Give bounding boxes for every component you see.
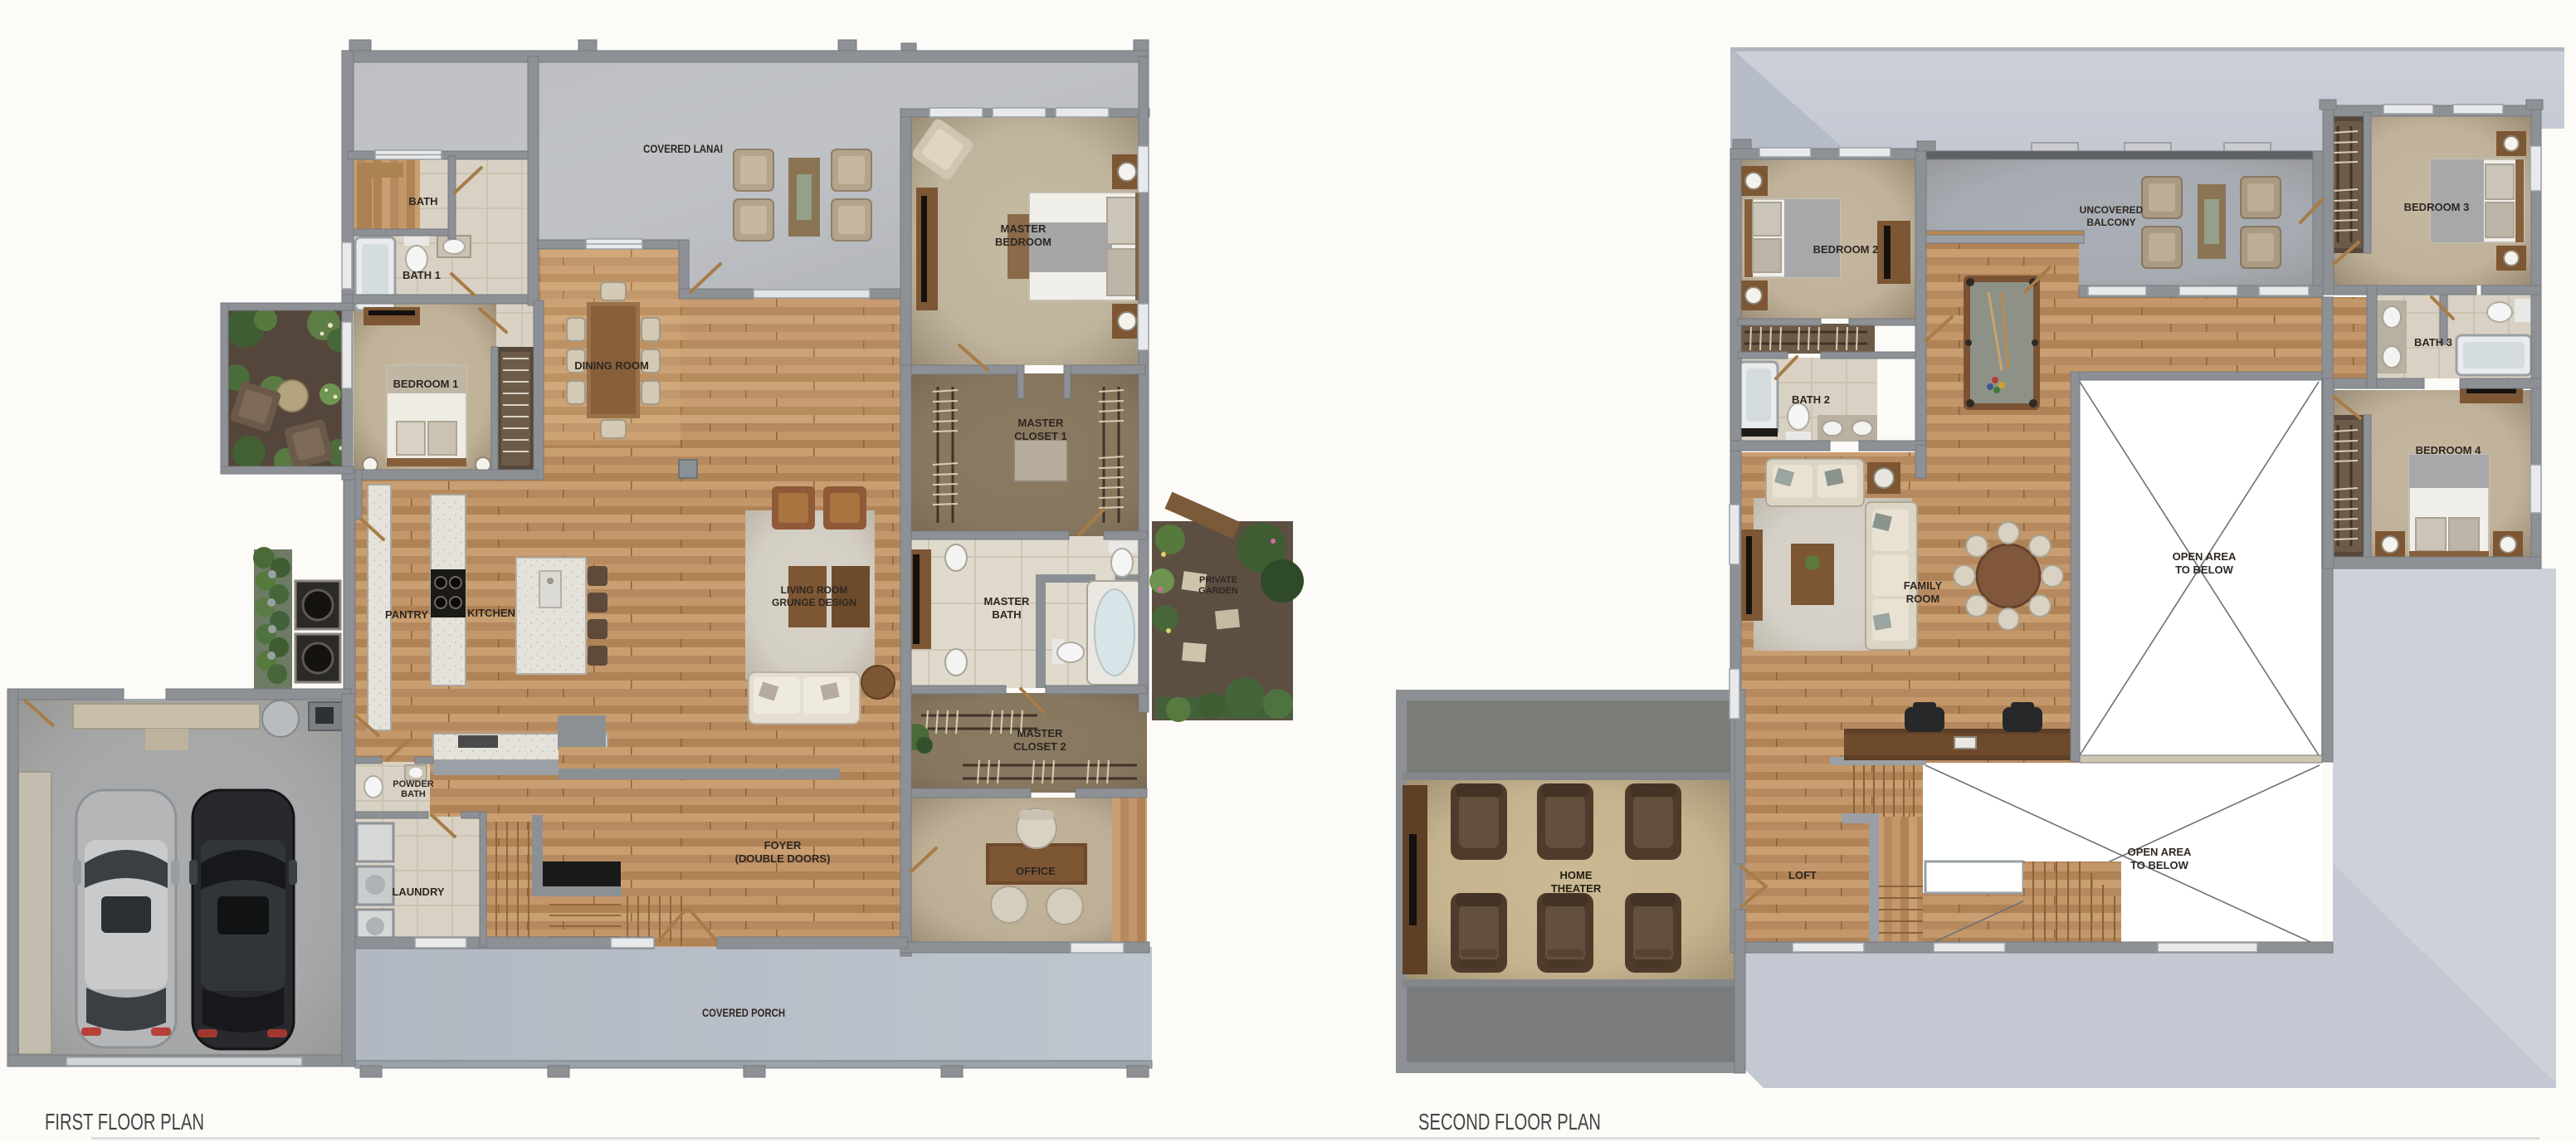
svg-text:OPEN AREA: OPEN AREA bbox=[2173, 550, 2237, 563]
svg-text:KITCHEN: KITCHEN bbox=[467, 607, 515, 619]
svg-text:MASTER: MASTER bbox=[1018, 417, 1065, 429]
svg-text:DINING ROOM: DINING ROOM bbox=[574, 359, 649, 372]
svg-text:CLOSET 1: CLOSET 1 bbox=[1014, 430, 1067, 442]
svg-text:BATH 3: BATH 3 bbox=[2414, 336, 2452, 349]
svg-text:LOFT: LOFT bbox=[1788, 869, 1817, 881]
svg-text:BATH 2: BATH 2 bbox=[1792, 393, 1830, 406]
svg-text:COVERED PORCH: COVERED PORCH bbox=[702, 1006, 785, 1019]
svg-text:PRIVATE: PRIVATE bbox=[1199, 575, 1237, 585]
svg-text:UNCOVERED: UNCOVERED bbox=[2080, 204, 2144, 216]
svg-text:BATH: BATH bbox=[992, 608, 1021, 621]
svg-text:LAUNDRY: LAUNDRY bbox=[392, 886, 444, 898]
svg-text:CLOSET 2: CLOSET 2 bbox=[1013, 740, 1066, 753]
svg-text:BEDROOM 1: BEDROOM 1 bbox=[393, 378, 459, 390]
svg-text:MASTER: MASTER bbox=[1001, 222, 1047, 235]
svg-text:BATH: BATH bbox=[408, 195, 437, 207]
svg-text:THEATER: THEATER bbox=[1551, 882, 1602, 895]
svg-text:MASTER: MASTER bbox=[1017, 727, 1064, 739]
svg-text:FOYER: FOYER bbox=[764, 839, 802, 852]
svg-text:FAMILY: FAMILY bbox=[1904, 579, 1943, 592]
svg-text:BATH: BATH bbox=[401, 789, 426, 799]
svg-text:COVERED LANAI: COVERED LANAI bbox=[643, 142, 723, 155]
svg-text:SECOND FLOOR PLAN: SECOND FLOOR PLAN bbox=[1418, 1109, 1601, 1135]
svg-text:GRUNGE DESIGN: GRUNGE DESIGN bbox=[772, 597, 856, 608]
svg-text:GARDEN: GARDEN bbox=[1198, 586, 1238, 596]
svg-text:MASTER: MASTER bbox=[984, 595, 1031, 608]
svg-text:OFFICE: OFFICE bbox=[1016, 865, 1056, 877]
svg-text:BATH 1: BATH 1 bbox=[402, 269, 441, 281]
svg-text:ROOM: ROOM bbox=[1906, 593, 1939, 605]
svg-text:(DOUBLE DOORS): (DOUBLE DOORS) bbox=[735, 852, 831, 865]
svg-text:BEDROOM 2: BEDROOM 2 bbox=[1813, 243, 1879, 256]
svg-text:TO BELOW: TO BELOW bbox=[2175, 564, 2234, 576]
svg-text:OPEN AREA: OPEN AREA bbox=[2128, 846, 2192, 858]
svg-text:HOME: HOME bbox=[1560, 869, 1593, 881]
svg-text:LIVING ROOM: LIVING ROOM bbox=[781, 584, 848, 596]
svg-text:BEDROOM: BEDROOM bbox=[995, 236, 1051, 248]
svg-text:BEDROOM 3: BEDROOM 3 bbox=[2404, 201, 2470, 213]
svg-text:TO BELOW: TO BELOW bbox=[2130, 859, 2189, 871]
svg-text:BEDROOM 4: BEDROOM 4 bbox=[2416, 444, 2482, 456]
svg-text:BALCONY: BALCONY bbox=[2086, 217, 2135, 228]
svg-text:POWDER: POWDER bbox=[393, 779, 434, 789]
svg-text:FIRST FLOOR PLAN: FIRST FLOOR PLAN bbox=[45, 1109, 204, 1135]
svg-text:PANTRY: PANTRY bbox=[385, 608, 428, 621]
